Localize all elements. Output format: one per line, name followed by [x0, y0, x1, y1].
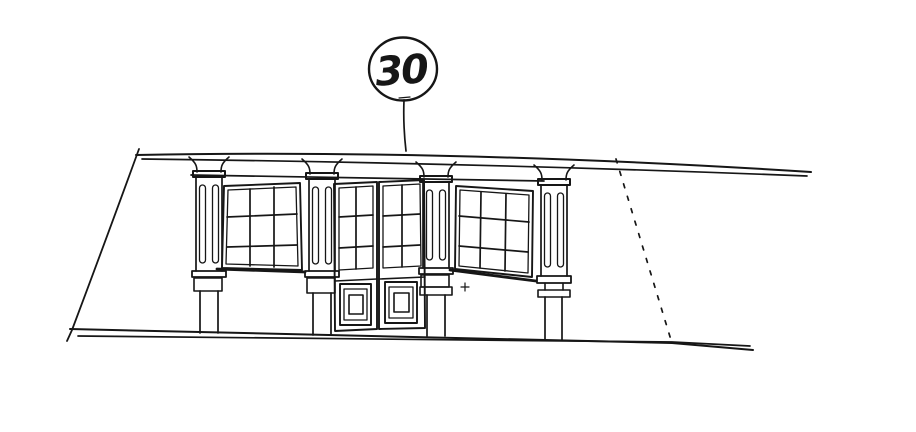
- paper-background: [0, 0, 916, 432]
- callout-number: 30: [374, 46, 430, 96]
- storefront-elevation-sketch: 30: [0, 0, 916, 432]
- callout-number-wrap: 30: [374, 46, 430, 96]
- sketch-page: 30: [0, 0, 916, 432]
